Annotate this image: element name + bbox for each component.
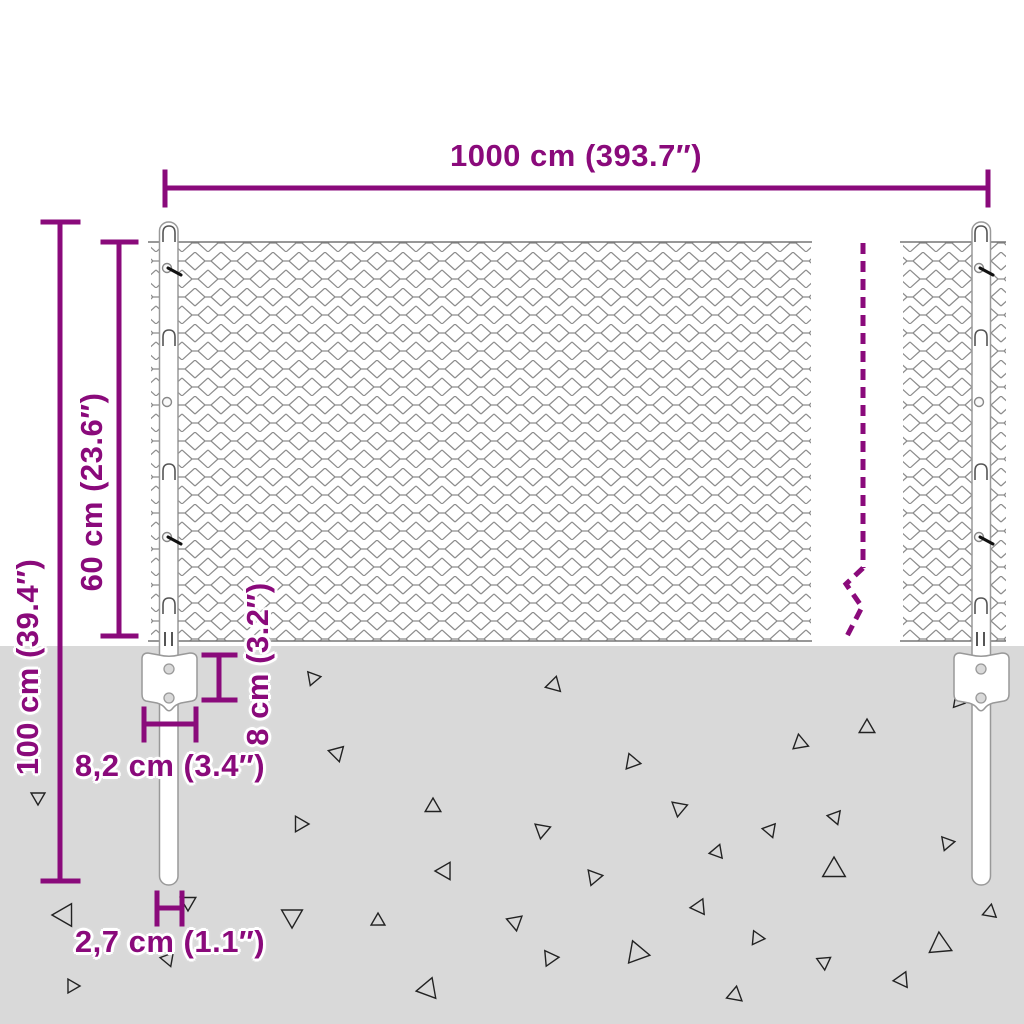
wire-loop-icon [163, 398, 172, 407]
fence-mesh-left-panel [148, 242, 812, 641]
fence-post-left [160, 222, 179, 885]
label-mesh-height: 60 cm (23.6″) [74, 393, 110, 592]
label-total-width: 1000 cm (393.7″) [450, 138, 702, 174]
wire-loop-icon [975, 398, 984, 407]
label-post-height: 100 cm (39.4″) [10, 559, 46, 776]
label-anchor-depth: 8 cm (3.2″) [240, 582, 276, 745]
label-post-diameter: 2,7 cm (1.1″) [75, 924, 265, 960]
label-bracket-width: 8,2 cm (3.4″) [75, 748, 265, 784]
fence-post-right [972, 222, 991, 885]
break-line [845, 243, 863, 640]
dim-total-width-line [165, 172, 988, 205]
bracket-left [142, 653, 197, 711]
bracket-right [954, 653, 1009, 711]
fence-dimension-diagram: 1000 cm (393.7″) 60 cm (23.6″) 100 cm (3… [0, 0, 1024, 1024]
